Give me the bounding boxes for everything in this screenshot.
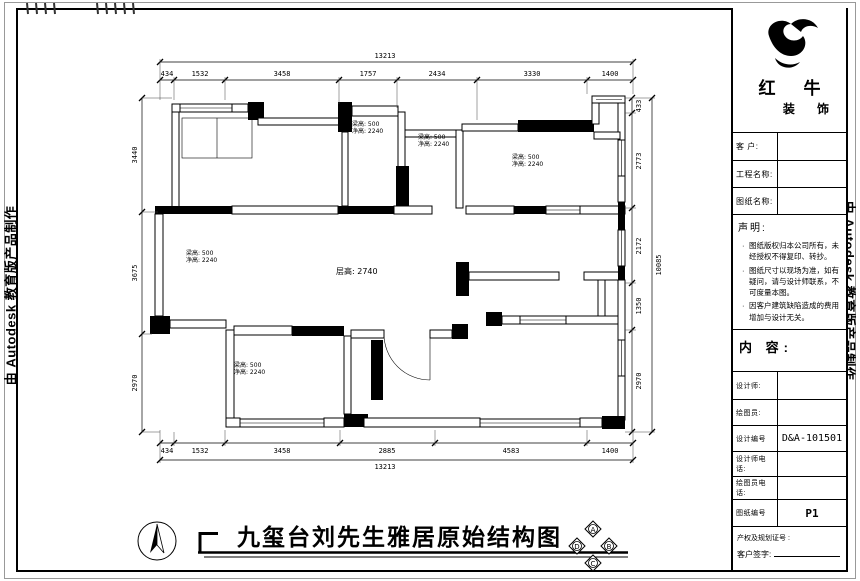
content-section: 内 容: — [733, 330, 846, 372]
marker-d: D — [574, 543, 579, 551]
dim-top-segment: 3330 — [524, 70, 541, 78]
field-row-client: 客 户: — [733, 133, 846, 161]
statement-item: 因客户建筑缺陷造成的费用增加与设计无关。 — [742, 300, 841, 323]
dim-right-segment: 433 — [635, 100, 643, 113]
beam-label: 梁高: 500 — [234, 361, 262, 369]
draftsman-label: 绘图员: — [733, 400, 778, 425]
dim-right-total: 10085 — [655, 254, 663, 275]
sheet-number-label: 图纸编号 — [733, 500, 778, 526]
elevation-markers: A B C D — [569, 521, 617, 571]
row-draftsman: 绘图员: — [733, 400, 846, 426]
draftsman-phone-label: 绘图员电话: — [733, 477, 778, 499]
client-label: 客 户: — [733, 133, 778, 160]
dim-bottom-segment: 3458 — [274, 447, 291, 455]
designer-value — [778, 372, 846, 399]
floor-height-label: 层高: 2740 — [336, 266, 378, 276]
dim-top-segment: 1757 — [360, 70, 377, 78]
marker-a: A — [591, 526, 596, 534]
title-block: 红 牛 装 饰 客 户: 工程名称: 图纸名称: 声明: 图纸版权归本公司所有，… — [731, 8, 846, 570]
project-name-label: 工程名称: — [733, 161, 778, 187]
designer-label: 设计师: — [733, 372, 778, 399]
row-designer: 设计师: — [733, 372, 846, 400]
row-draftsman-phone: 绘图员电话: — [733, 477, 846, 500]
drawing-name-value — [778, 188, 846, 214]
design-number-label: 设计编号 — [733, 426, 778, 451]
dim-left-segment: 3675 — [131, 265, 139, 282]
draftsman-value — [778, 400, 846, 425]
dim-bottom-segment: 1532 — [192, 447, 209, 455]
company-logo: 红 牛 装 饰 — [733, 8, 846, 133]
dim-top-segment: 3458 — [274, 70, 291, 78]
marker-c: C — [591, 560, 596, 568]
dim-right-segment: 2970 — [635, 373, 643, 390]
field-row-drawing: 图纸名称: — [733, 188, 846, 215]
statement-item: 图纸版权归本公司所有，未经授权不得复印、转抄。 — [742, 240, 841, 263]
row-design-number: 设计编号 D&A-101501 — [733, 426, 846, 452]
content-label: 内 容: — [739, 340, 793, 355]
dim-bottom-segment: 1400 — [602, 447, 619, 455]
dim-bottom-segment: 4583 — [503, 447, 520, 455]
draftsman-phone-value — [778, 477, 846, 499]
drawing-name-label: 图纸名称: — [733, 188, 778, 214]
client-value — [778, 133, 846, 160]
dim-bottom-total: 13213 — [374, 463, 395, 471]
designer-phone-value — [778, 452, 846, 476]
beam-label: 净高: 2240 — [186, 256, 217, 264]
dim-left-segment: 3440 — [131, 147, 139, 164]
certificate-label: 产权及规划证号 : — [737, 533, 842, 543]
dim-right-segment: 2172 — [635, 238, 643, 255]
brand-name: 红 牛 — [733, 74, 846, 99]
dim-top-segment: 1400 — [602, 70, 619, 78]
signature-label: 客户签字: — [737, 550, 771, 559]
statement-section: 声明: 图纸版权归本公司所有，未经授权不得复印、转抄。 图纸尺寸以现场为准，如有… — [733, 215, 846, 330]
dim-top-total: 13213 — [374, 52, 395, 60]
plan-walls — [150, 96, 625, 429]
statement-heading: 声明: — [738, 221, 841, 236]
design-number-value: D&A-101501 — [778, 426, 846, 451]
row-sheet-number: 图纸编号 P1 — [733, 500, 846, 527]
sheet-title: 九玺台刘先生雅居原始结构图 — [237, 518, 562, 552]
brand-suffix: 装 饰 — [733, 100, 846, 117]
statement-item: 图纸尺寸以现场为准，如有疑问，请与设计师联系，不可度量本图。 — [742, 265, 841, 299]
dim-bottom-segment: 2885 — [379, 447, 396, 455]
field-row-project: 工程名称: — [733, 161, 846, 188]
sheet-number-value: P1 — [778, 500, 846, 526]
beam-label: 净高: 2240 — [418, 140, 449, 148]
dim-top-segment: 2434 — [429, 70, 446, 78]
beam-label: 净高: 2240 — [352, 127, 383, 135]
beam-label: 梁高: 500 — [352, 120, 380, 128]
signature-section: 产权及规划证号 : 客户签字: — [733, 527, 846, 570]
beam-label: 梁高: 500 — [512, 153, 540, 161]
statement-list: 图纸版权归本公司所有，未经授权不得复印、转抄。 图纸尺寸以现场为准，如有疑问，请… — [738, 240, 841, 323]
beam-label: 梁高: 500 — [186, 249, 214, 257]
beam-label: 净高: 2240 — [234, 368, 265, 376]
beam-label: 净高: 2240 — [512, 160, 543, 168]
row-designer-phone: 设计师电话: — [733, 452, 846, 477]
beam-label: 梁高: 500 — [418, 133, 446, 141]
project-name-value — [778, 161, 846, 187]
dim-right-segment: 1350 — [635, 298, 643, 315]
north-compass-icon — [138, 522, 176, 560]
signature-line — [774, 548, 840, 557]
edge-tick-marks — [27, 3, 134, 14]
dim-left-segment: 2970 — [131, 375, 139, 392]
bull-logo-icon — [755, 14, 825, 76]
designer-phone-label: 设计师电话: — [733, 452, 778, 476]
dim-top-segment: 1532 — [192, 70, 209, 78]
dim-top-segment: 434 — [161, 70, 174, 78]
marker-b: B — [607, 543, 612, 551]
dim-bottom-segment: 434 — [161, 447, 174, 455]
dim-right-segment: 2773 — [635, 153, 643, 170]
